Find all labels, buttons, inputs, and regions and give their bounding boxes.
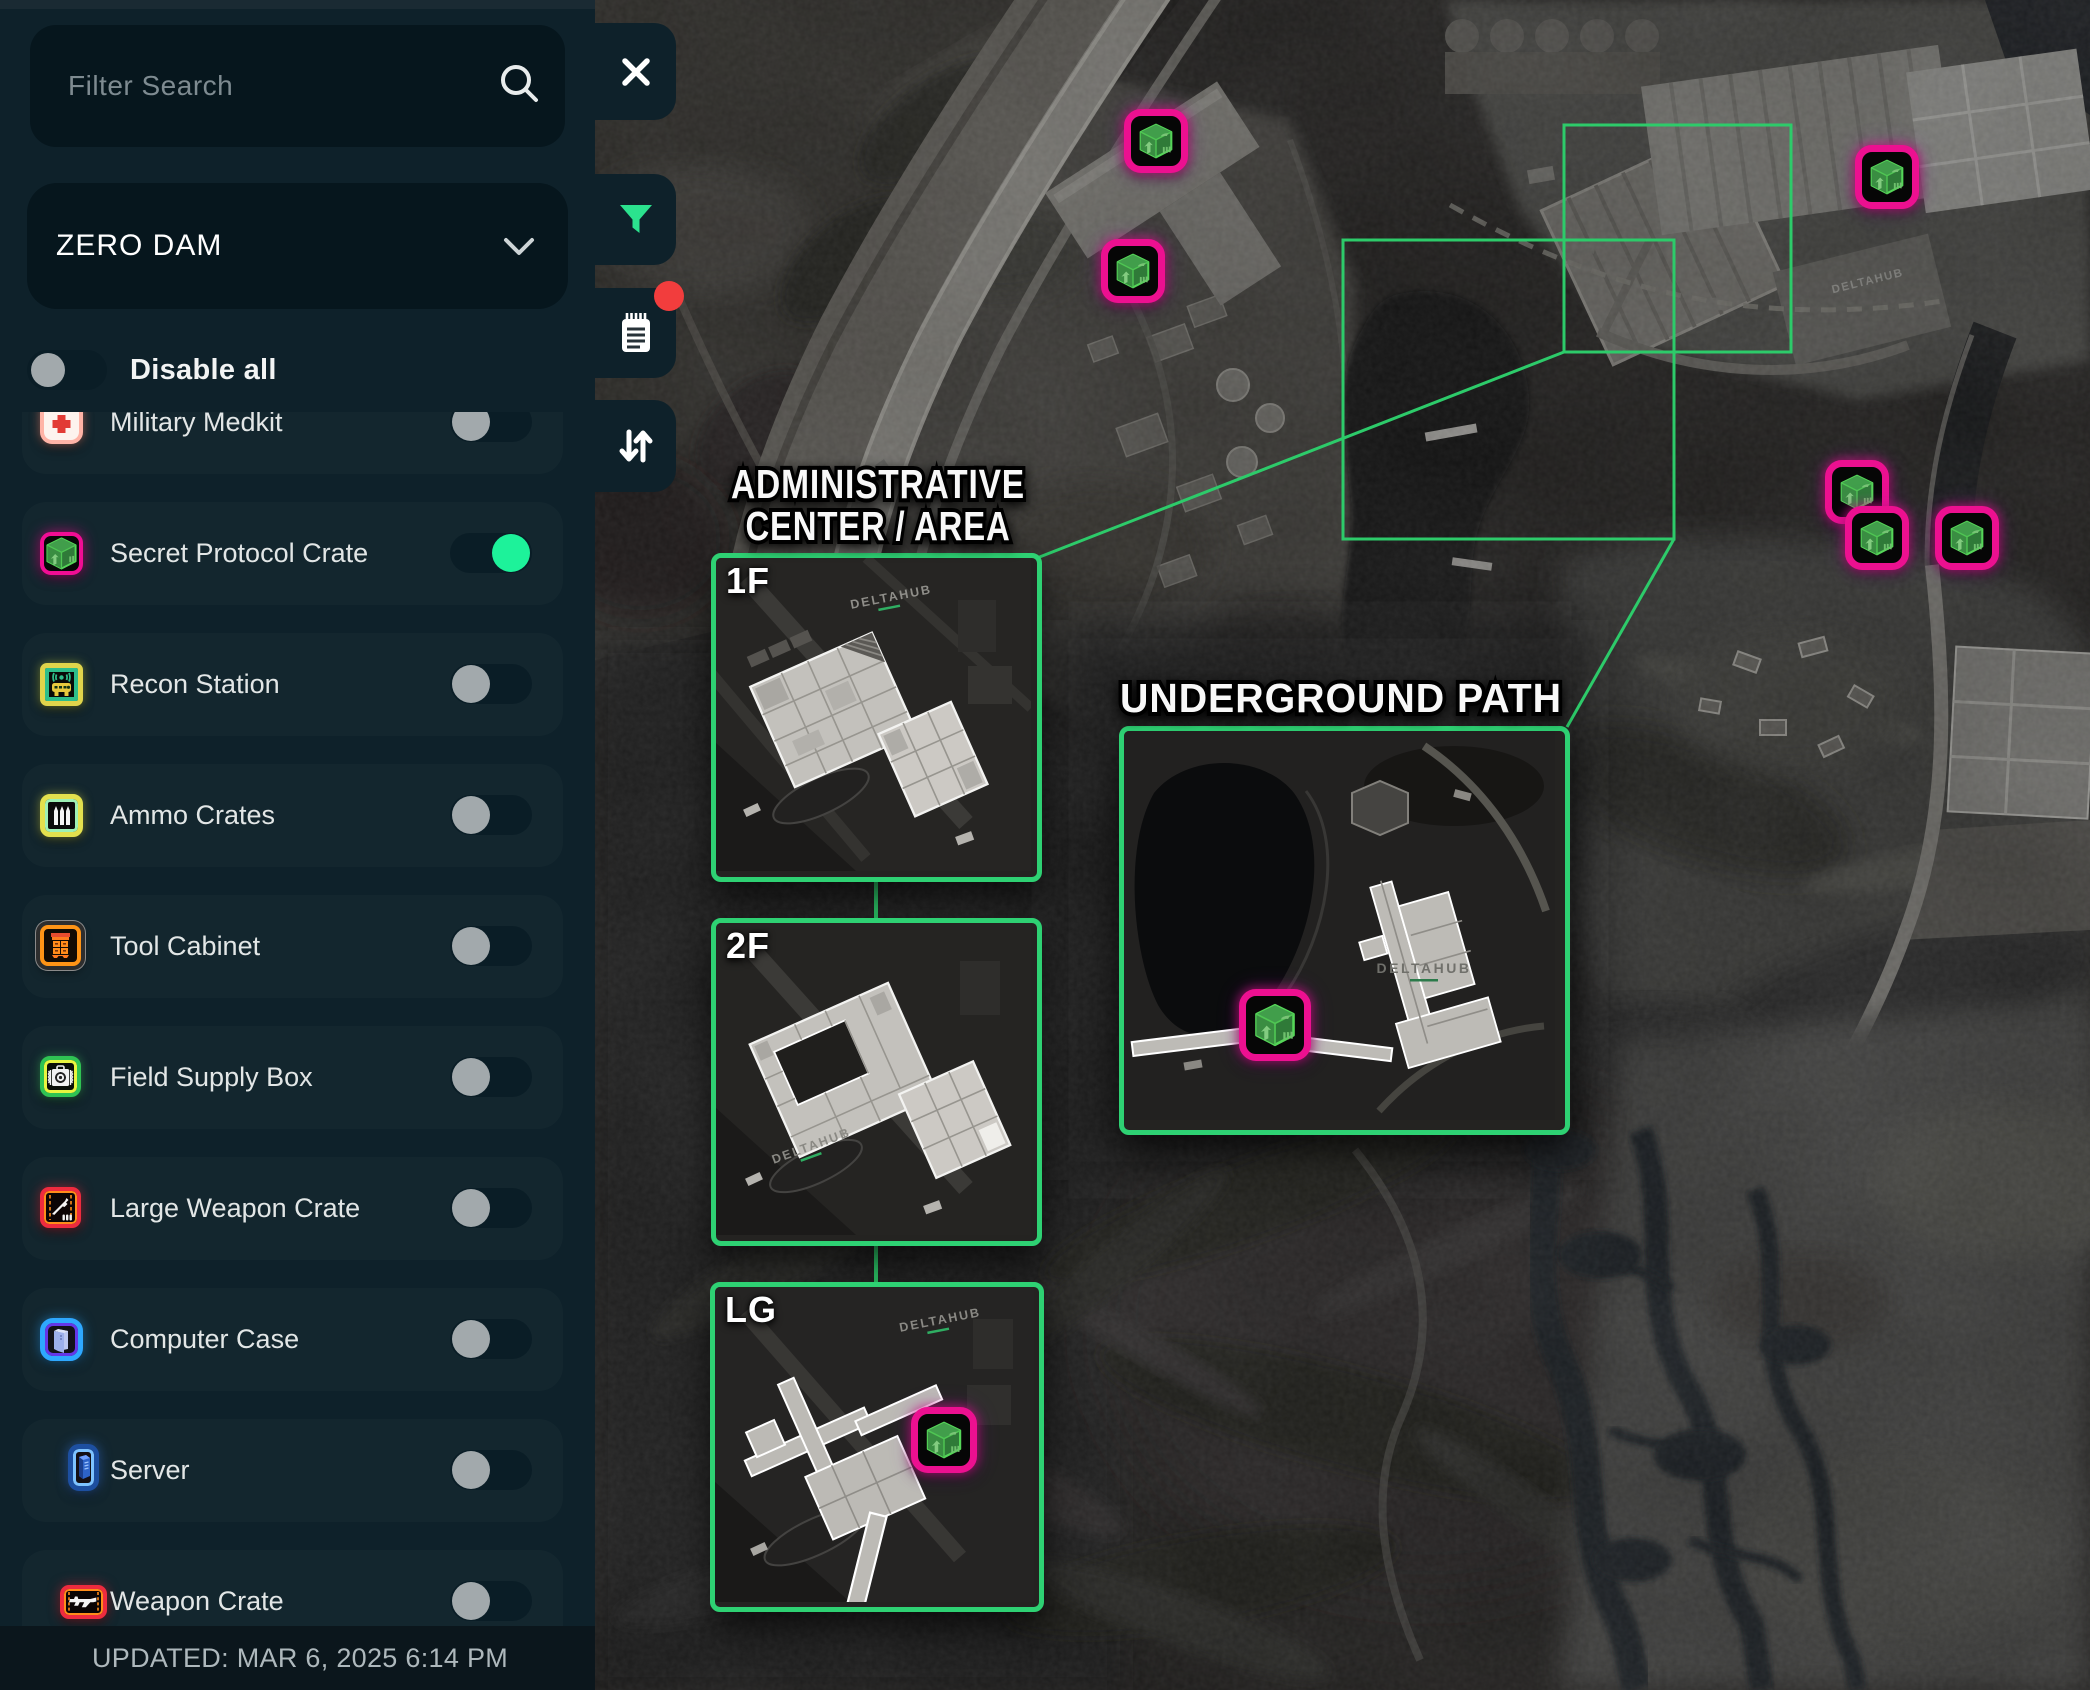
svg-text:CENTER / AREA: CENTER / AREA (746, 503, 1011, 549)
svg-text:UNDERGROUND PATH: UNDERGROUND PATH (1120, 675, 1562, 721)
svg-text:ADMINISTRATIVE: ADMINISTRATIVE (731, 461, 1025, 507)
svg-text:DELTAHUB: DELTAHUB (1377, 960, 1472, 976)
